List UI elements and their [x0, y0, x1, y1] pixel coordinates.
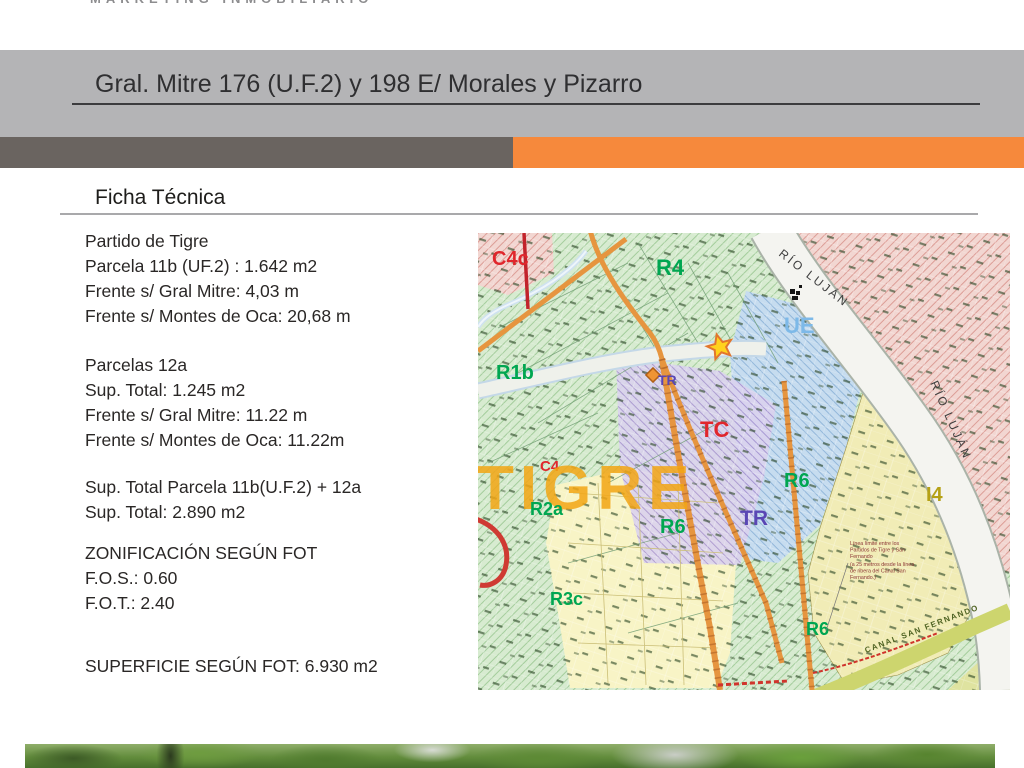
- zone-label-tr: TR: [740, 507, 768, 530]
- fact-line: Frente s/ Gral Mitre: 11.22 m: [85, 403, 475, 428]
- zoning-map: TR C4 TIGRE C4c R4 R1b UE TC R6 TR R6 I4…: [478, 233, 1010, 690]
- divider-bar-gray: [0, 137, 513, 168]
- fact-line: Parcela 11b (UF.2) : 1.642 m2: [85, 254, 475, 279]
- fact-block-parcela-12a: Parcelas 12a Sup. Total: 1.245 m2 Frente…: [85, 353, 475, 453]
- annotation-line: (a 25 metros desde la línea: [850, 562, 914, 568]
- zoning-map-svg: TR C4 TIGRE C4c R4 R1b UE TC R6 TR R6 I4…: [478, 233, 1010, 690]
- section-underline: [60, 213, 978, 215]
- section-heading: Ficha Técnica: [95, 186, 225, 210]
- fact-block-superficie: SUPERFICIE SEGÚN FOT: 6.930 m2: [85, 654, 475, 679]
- fact-line: Parcelas 12a: [85, 353, 475, 378]
- fact-line: Frente s/ Montes de Oca: 11.22m: [85, 428, 475, 453]
- flyer-page: MARKETING INMOBILIARIO Gral. Mitre 176 (…: [0, 0, 1024, 768]
- annotation-line: Partidos de Tigre y San: [850, 548, 905, 554]
- annotation-line: de ribera del Canal San: [850, 569, 906, 575]
- zone-label-r1b: R1b: [496, 362, 534, 384]
- divider-bar-orange: [513, 137, 1024, 168]
- annotation-line: Línea límite entre los: [850, 541, 900, 547]
- zone-label-r6-east: R6: [784, 470, 810, 492]
- zone-label-r3c: R3c: [550, 589, 583, 609]
- brand-tagline: MARKETING INMOBILIARIO: [90, 0, 373, 6]
- title-underline: [72, 103, 980, 105]
- zone-label-i4: I4: [926, 484, 944, 506]
- fact-line: Sup. Total: 1.245 m2: [85, 378, 475, 403]
- fact-line: ZONIFICACIÓN SEGÚN FOT: [85, 541, 475, 566]
- zone-label-tc: TC: [700, 417, 729, 442]
- fact-line: Frente s/ Montes de Oca: 20,68 m: [85, 304, 475, 329]
- fact-block-parcela-11b: Partido de Tigre Parcela 11b (UF.2) : 1.…: [85, 229, 475, 329]
- fact-line: F.O.T.: 2.40: [85, 591, 475, 616]
- tigre-watermark: TIGRE: [478, 454, 695, 523]
- fact-line: Sup. Total Parcela 11b(U.F.2) + 12a: [85, 475, 475, 500]
- zone-label-tr-small: TR: [658, 372, 677, 388]
- fact-line: Frente s/ Gral Mitre: 4,03 m: [85, 279, 475, 304]
- annotation-line: Fernando: [850, 554, 873, 560]
- fact-line: Sup. Total: 2.890 m2: [85, 500, 475, 525]
- zone-label-ue: UE: [784, 313, 815, 338]
- zone-label-r6-south: R6: [806, 619, 829, 639]
- fact-line: F.O.S.: 0.60: [85, 566, 475, 591]
- page-title: Gral. Mitre 176 (U.F.2) y 198 E/ Morales…: [95, 70, 642, 99]
- footer-photo: [25, 744, 995, 768]
- zone-label-r6-mid: R6: [660, 516, 686, 538]
- fact-block-total: Sup. Total Parcela 11b(U.F.2) + 12a Sup.…: [85, 475, 475, 525]
- fact-block-zonificacion: ZONIFICACIÓN SEGÚN FOT F.O.S.: 0.60 F.O.…: [85, 541, 475, 616]
- fact-line: SUPERFICIE SEGÚN FOT: 6.930 m2: [85, 654, 475, 679]
- annotation-line: Fernando.): [850, 575, 876, 581]
- fact-line: Partido de Tigre: [85, 229, 475, 254]
- zone-label-c4c: C4c: [492, 248, 529, 270]
- zone-label-r2a: R2a: [530, 499, 564, 519]
- zone-label-r4: R4: [656, 255, 685, 280]
